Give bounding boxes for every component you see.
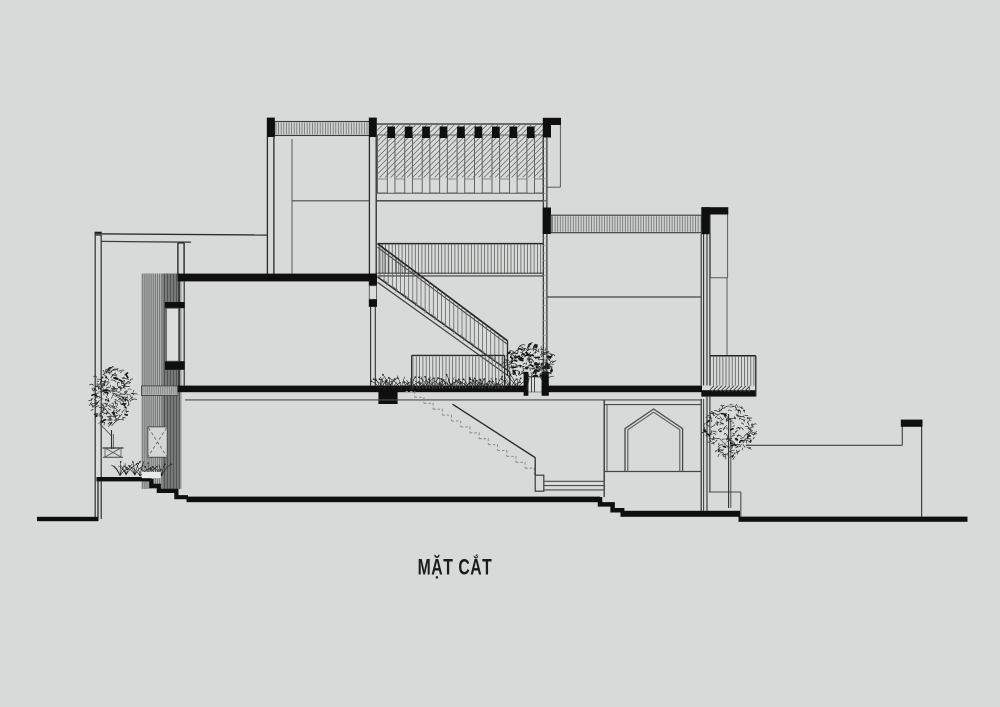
svg-text:MẶT CẮT: MẶT CẮT [418, 552, 493, 580]
